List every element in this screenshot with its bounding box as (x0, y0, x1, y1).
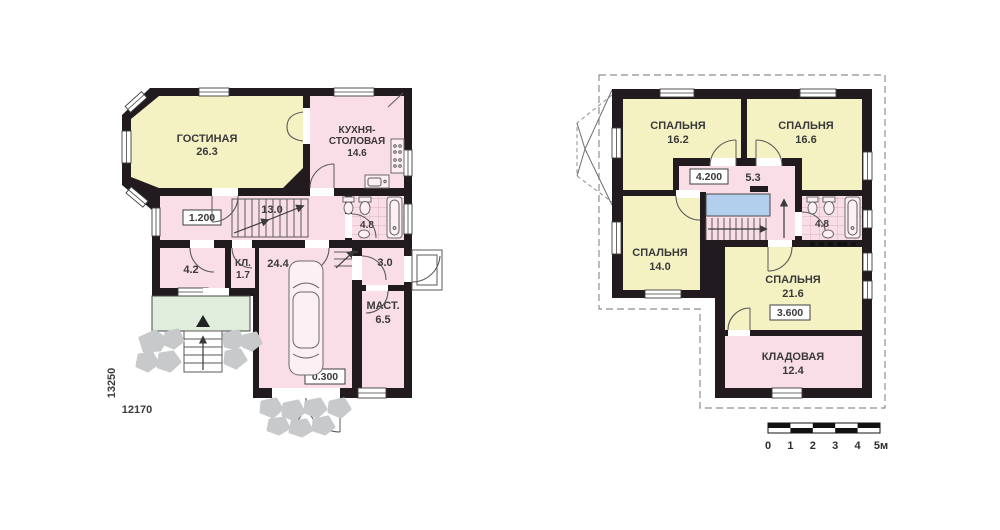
scale-bar: 0 1 2 3 4 5м (765, 423, 888, 452)
room-workshop-area: 6.5 (375, 314, 390, 326)
stove-icon (391, 139, 404, 173)
room-closet-area: 1.7 (236, 270, 250, 281)
entry-landing (412, 250, 442, 290)
room-workshop-name: МАСТ. (366, 300, 399, 312)
window (645, 290, 681, 298)
room-bedroom4-name: СПАЛЬНЯ (765, 274, 820, 286)
window (199, 88, 229, 96)
room-42-area: 4.2 (183, 264, 198, 276)
room-kitchen-name2: СТОЛОВАЯ (329, 136, 385, 147)
bathtub-icon (387, 197, 402, 238)
room-bedroom4: СПАЛЬНЯ 21.6 3.600 (725, 247, 862, 330)
dimension-vertical: 13250 (106, 368, 118, 399)
dimension-horizontal: 12170 (122, 404, 153, 416)
floor-plan-canvas: ГОСТИНАЯ 26.3 КУХНЯ- СТОЛОВАЯ 14.6 13.0 … (0, 0, 1000, 530)
entry-steps-icon (184, 331, 222, 372)
room-living-area: 26.3 (196, 146, 217, 158)
room-bedroom3: СПАЛЬНЯ 14.0 (623, 196, 700, 290)
room-bedroom1-area: 16.2 (667, 134, 688, 146)
scale-label-0: 0 (765, 440, 771, 452)
toilet-icon (807, 197, 818, 214)
window (358, 388, 386, 398)
window (863, 152, 872, 180)
room-kitchen-area: 14.6 (347, 148, 367, 159)
bidet-icon (359, 230, 370, 238)
room-storage-area: 12.4 (782, 365, 804, 377)
window (772, 388, 802, 398)
bedroom4-level-mark: 3.600 (777, 307, 803, 319)
sink-icon (823, 197, 835, 215)
room-kitchen-name1: КУХНЯ- (339, 125, 376, 136)
room-hall-area: 13.0 (261, 204, 282, 216)
scale-label-4: 4 (855, 440, 862, 452)
window (152, 208, 160, 236)
window (863, 253, 872, 271)
room-living-name: ГОСТИНАЯ (177, 133, 238, 145)
window (612, 128, 621, 158)
room-bedroom2-name: СПАЛЬНЯ (778, 120, 833, 132)
room-bedroom3-area: 14.0 (649, 261, 670, 273)
scale-label-5: 5м (874, 440, 888, 452)
scale-label-1: 1 (787, 440, 793, 452)
room-bedroom1-name: СПАЛЬНЯ (650, 120, 705, 132)
floor2-plan: СПАЛЬНЯ 16.2 СПАЛЬНЯ 16.6 4.200 5.3 (577, 75, 885, 408)
window (800, 89, 836, 97)
door-arc (404, 256, 440, 282)
porch (152, 296, 250, 331)
window (660, 89, 694, 97)
room-kitchen: КУХНЯ- СТОЛОВАЯ 14.6 (310, 93, 404, 188)
window (404, 150, 412, 176)
car-icon (289, 261, 323, 375)
window (122, 131, 131, 163)
room-42: 4.2 (160, 248, 225, 288)
room-vestibule: 3.0 (362, 248, 404, 285)
room-hall2-area: 5.3 (745, 172, 760, 184)
hall-level-mark: 1.200 (189, 212, 215, 224)
room-bath2-area: 4.8 (815, 219, 829, 230)
window (863, 210, 872, 228)
bathtub-icon (845, 197, 860, 238)
bay-roof (577, 90, 612, 205)
room-bedroom3-name: СПАЛЬНЯ (632, 247, 687, 259)
toilet-icon (343, 197, 354, 214)
window (334, 88, 374, 96)
room-bedroom4-area: 21.6 (782, 288, 803, 300)
room-storage-name: КЛАДОВАЯ (762, 351, 825, 363)
room-storage: КЛАДОВАЯ 12.4 (725, 336, 862, 388)
hall2-level-mark: 4.200 (696, 171, 722, 183)
bidet-icon (823, 230, 834, 238)
floor1-plan: ГОСТИНАЯ 26.3 КУХНЯ- СТОЛОВАЯ 14.6 13.0 … (106, 88, 442, 436)
scale-label-2: 2 (810, 440, 816, 452)
sink-icon (359, 197, 371, 215)
scale-label-3: 3 (832, 440, 838, 452)
room-living: ГОСТИНАЯ 26.3 (131, 96, 303, 188)
window (863, 281, 872, 299)
window (404, 204, 412, 234)
room-garage-area: 24.4 (267, 258, 289, 270)
room-bedroom2-area: 16.6 (795, 134, 816, 146)
stair-void (706, 194, 770, 216)
kitchen-sink-icon (365, 175, 389, 188)
window (612, 222, 621, 254)
